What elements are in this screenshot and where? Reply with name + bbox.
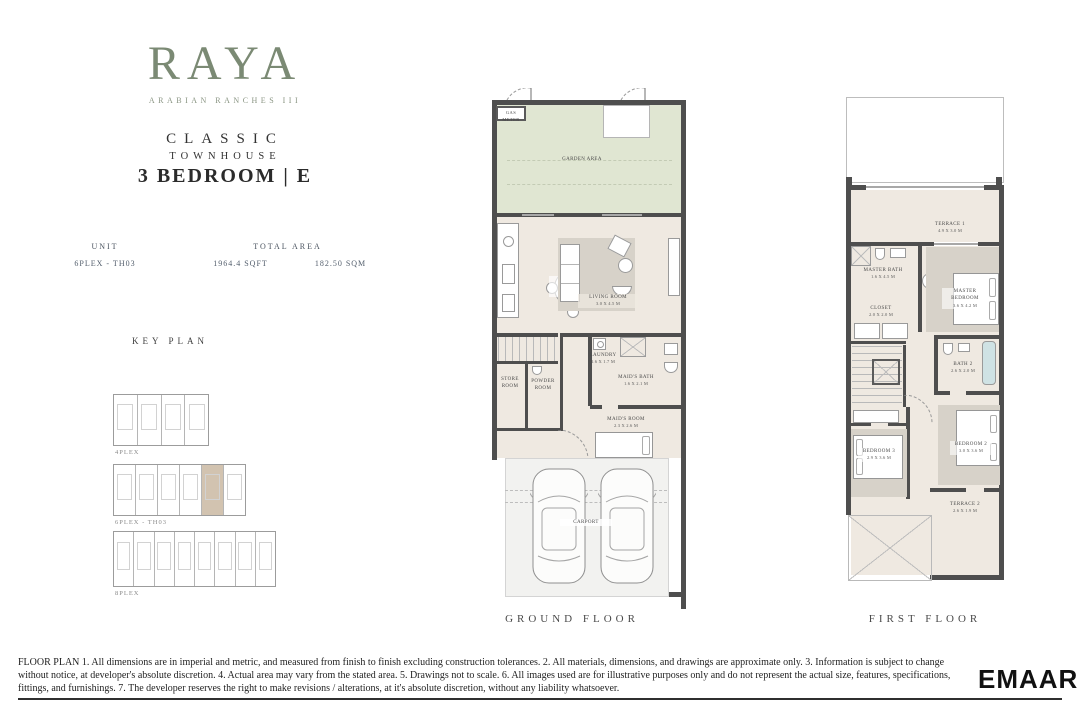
key-plan-unit — [195, 532, 215, 586]
first-floor-plan: TERRACE 1 4.9 X 3.0 M MASTER BATH 1.6 X … — [846, 95, 1004, 600]
wall — [681, 100, 686, 609]
unit-outline — [139, 474, 154, 500]
pillow — [989, 278, 996, 297]
wall — [497, 428, 563, 431]
key-plan-unit — [224, 465, 245, 515]
master-bedroom-label: MASTER BEDROOM 3.6 X 4.2 M — [942, 288, 988, 309]
key-plan-unit — [180, 465, 202, 515]
unit-outline — [227, 474, 242, 500]
washer-drum — [597, 341, 604, 348]
wall — [497, 361, 558, 364]
unit-outline — [157, 542, 171, 570]
garden-label: GARDEN AREA — [517, 156, 647, 163]
unit-value: 6PLEX - TH03 — [45, 259, 165, 268]
maids-bath-label: MAID'S BATH 1.6 X 2.1 M — [618, 374, 654, 388]
unit-outline — [198, 542, 212, 570]
room-name: STORE ROOM — [501, 377, 519, 389]
key-plan-unit — [134, 532, 154, 586]
ground-floor-plan: GAS METER GARDEN AREA KITCHEN / DINING 2… — [492, 88, 686, 608]
key-plan-unit — [136, 465, 158, 515]
room-name: CARPORT — [573, 520, 599, 525]
wardrobe-icon — [854, 323, 880, 339]
room-dims: 1.6 X 1.7 M — [589, 359, 617, 366]
laundry-label: LAUNDRY 1.6 X 1.7 M — [589, 352, 617, 366]
wall — [851, 341, 906, 344]
room-name: MAID'S ROOM — [607, 417, 645, 422]
toilet-icon — [943, 343, 953, 355]
toilet-icon — [875, 248, 885, 260]
area-metric: 182.50 SQM — [298, 259, 383, 268]
room-name: CLOSET — [870, 306, 891, 311]
wall — [560, 333, 563, 428]
maid-bed-icon — [595, 432, 653, 458]
key-plan-title: KEY PLAN — [120, 336, 220, 346]
master-bath-label: MASTER BATH 1.6 X 4.5 M — [862, 267, 904, 281]
key-plan-unit — [236, 532, 256, 586]
sliding-door-opening — [934, 243, 978, 245]
room-name: TERRACE 1 — [935, 222, 965, 227]
entry-porch — [603, 105, 650, 138]
room-dims: 3.0 X 4.5 M — [578, 301, 638, 308]
stair-void — [872, 359, 900, 385]
terrace-railing — [866, 186, 984, 188]
room-dims: 2.0 X 2.0 M — [860, 312, 902, 319]
room-dims: 2.6 X 2.0 M — [946, 368, 980, 375]
room-dims: 4.9 X 3.0 M — [922, 228, 978, 235]
sliding-door-opening — [602, 214, 642, 216]
total-area-label: TOTAL AREA — [225, 242, 350, 251]
key-plan-unit — [175, 532, 195, 586]
wall — [918, 242, 922, 332]
unit-outline — [161, 474, 176, 500]
room-dims: 3.6 X 4.2 M — [942, 303, 988, 310]
floorplan-brochure-page: RAYA ARABIAN RANCHES III CLASSIC TOWNHOU… — [0, 0, 1080, 720]
bed-icon — [956, 410, 1000, 466]
unit-outline — [117, 542, 131, 570]
gas-meter-label: GAS METER — [498, 110, 524, 123]
emaar-logo: EMAAR — [978, 664, 1078, 695]
key-plan-unit — [138, 395, 162, 445]
tv-unit-icon — [668, 238, 680, 296]
room-name: LAUNDRY — [590, 353, 617, 358]
key-plan-unit — [158, 465, 180, 515]
unit-outline — [259, 542, 273, 570]
ground-floor-caption: GROUND FLOOR — [472, 613, 672, 625]
wall — [525, 363, 528, 428]
key-plan-unit — [185, 395, 208, 445]
key-plan-unit — [162, 395, 186, 445]
type-title: TOWNHOUSE — [110, 151, 340, 162]
wall — [562, 333, 588, 337]
room-name: LIVING ROOM — [589, 295, 627, 300]
unit-outline — [137, 542, 151, 570]
store-room-label: STORE ROOM — [494, 376, 526, 391]
key-plan-block-4plex — [113, 394, 209, 446]
footer-disclaimer: FLOOR PLAN 1. All dimensions are in impe… — [18, 656, 963, 696]
unit-outline — [238, 542, 252, 570]
wall — [588, 333, 592, 406]
pillow — [989, 301, 996, 320]
unit-outline — [178, 542, 192, 570]
key-plan-unit — [202, 465, 224, 515]
staircase — [498, 337, 558, 361]
terrace1-label: TERRACE 1 4.9 X 3.0 M — [922, 221, 978, 235]
room-name: TERRACE 2 — [950, 502, 980, 507]
wall — [930, 575, 1004, 580]
paving-line — [507, 184, 672, 185]
open-to-below — [846, 97, 1004, 183]
bedroom2-label: BEDROOM 2 3.0 X 3.6 M — [950, 441, 992, 455]
unit-title: 3 BEDROOM | E — [90, 165, 360, 188]
key-plan-unit — [114, 465, 136, 515]
bath2-label: BATH 2 2.6 X 2.0 M — [946, 361, 980, 375]
unit-outline — [205, 474, 220, 500]
gas-meter-box: GAS METER — [496, 106, 526, 121]
room-name: POWDER ROOM — [531, 379, 555, 391]
washer-icon — [593, 338, 606, 350]
wall — [851, 423, 871, 426]
unit-outline — [141, 404, 157, 430]
shower-icon — [851, 246, 871, 266]
wall — [888, 423, 908, 426]
living-room-label: LIVING ROOM 3.0 X 4.5 M — [578, 294, 638, 308]
room-name: MASTER BATH — [864, 268, 903, 273]
shower-icon — [620, 337, 646, 357]
room-dims: 1.6 X 4.5 M — [862, 274, 904, 281]
unit-outline — [165, 404, 181, 430]
area-imperial: 1964.4 SQFT — [198, 259, 283, 268]
unit-outline — [183, 474, 198, 500]
unit-outline — [117, 404, 133, 430]
room-name: BATH 2 — [953, 362, 972, 367]
logo-subtitle: ARABIAN RANCHES III — [110, 96, 340, 105]
roof-below-void — [848, 515, 932, 581]
room-name: BEDROOM 3 — [863, 449, 895, 454]
bathtub-icon — [982, 341, 996, 385]
pillow — [642, 436, 650, 455]
key-plan-block-8plex — [113, 531, 276, 587]
sofa-icon — [560, 244, 580, 302]
footer-rule — [18, 698, 1062, 700]
wall — [934, 335, 938, 393]
room-dims: 1.6 X 2.1 M — [618, 381, 654, 388]
wall — [846, 177, 852, 185]
key-plan-block-6plex — [113, 464, 246, 516]
room-name: BEDROOM 2 — [955, 442, 987, 447]
carport-label: CARPORT — [560, 519, 612, 526]
wall — [934, 391, 950, 395]
collection-title: CLASSIC — [110, 131, 340, 148]
powder-room-label: POWDER ROOM — [528, 378, 558, 393]
cushion-line — [561, 264, 579, 265]
raya-logo: RAYA — [130, 36, 320, 91]
stove-icon — [502, 264, 515, 284]
key-plan-unit — [215, 532, 235, 586]
key-plan-caption: 6PLEX - TH03 — [115, 519, 235, 526]
unit-outline — [189, 404, 205, 430]
bedroom3-label: BEDROOM 3 2.9 X 3.6 M — [858, 448, 900, 462]
bench-icon — [853, 410, 899, 423]
first-floor-caption: FIRST FLOOR — [825, 613, 1025, 625]
unit-outline — [117, 474, 132, 500]
sink-icon — [503, 236, 514, 247]
kitchen-counter — [497, 223, 519, 318]
room-name: MASTER BEDROOM — [951, 289, 979, 301]
closet-label: CLOSET 2.0 X 2.0 M — [860, 305, 902, 319]
room-name: MAID'S BATH — [618, 375, 654, 380]
vanity-icon — [890, 248, 906, 258]
wall — [966, 391, 1004, 395]
wall — [938, 335, 1004, 339]
sink-icon — [664, 343, 678, 355]
room-dims: 3.0 X 3.6 M — [950, 448, 992, 455]
terrace2-label: TERRACE 2 2.6 X 1.9 M — [940, 501, 990, 515]
key-plan-caption: 4PLEX — [115, 449, 205, 456]
pillow — [990, 415, 997, 433]
key-plan-caption: 8PLEX — [115, 590, 205, 597]
room-dims: 2.9 X 3.6 M — [858, 455, 900, 462]
sink-icon — [958, 343, 970, 352]
cushion-line — [561, 283, 579, 284]
window-opening — [522, 214, 554, 216]
key-plan-unit — [114, 532, 134, 586]
fridge-icon — [502, 294, 515, 312]
room-dims: 2.3 X 2.6 M — [604, 423, 648, 430]
wall — [618, 405, 681, 409]
key-plan-unit — [155, 532, 175, 586]
wall — [590, 405, 602, 409]
unit-outline — [218, 542, 232, 570]
unit-label: UNIT — [60, 242, 150, 251]
side-table-icon — [618, 258, 633, 273]
room-dims: 2.6 X 1.9 M — [940, 508, 990, 515]
key-plan-unit — [256, 532, 275, 586]
maids-room-label: MAID'S ROOM 2.3 X 2.6 M — [604, 416, 648, 430]
key-plan-unit — [114, 395, 138, 445]
wall — [996, 177, 1002, 185]
wardrobe-icon — [882, 323, 908, 339]
